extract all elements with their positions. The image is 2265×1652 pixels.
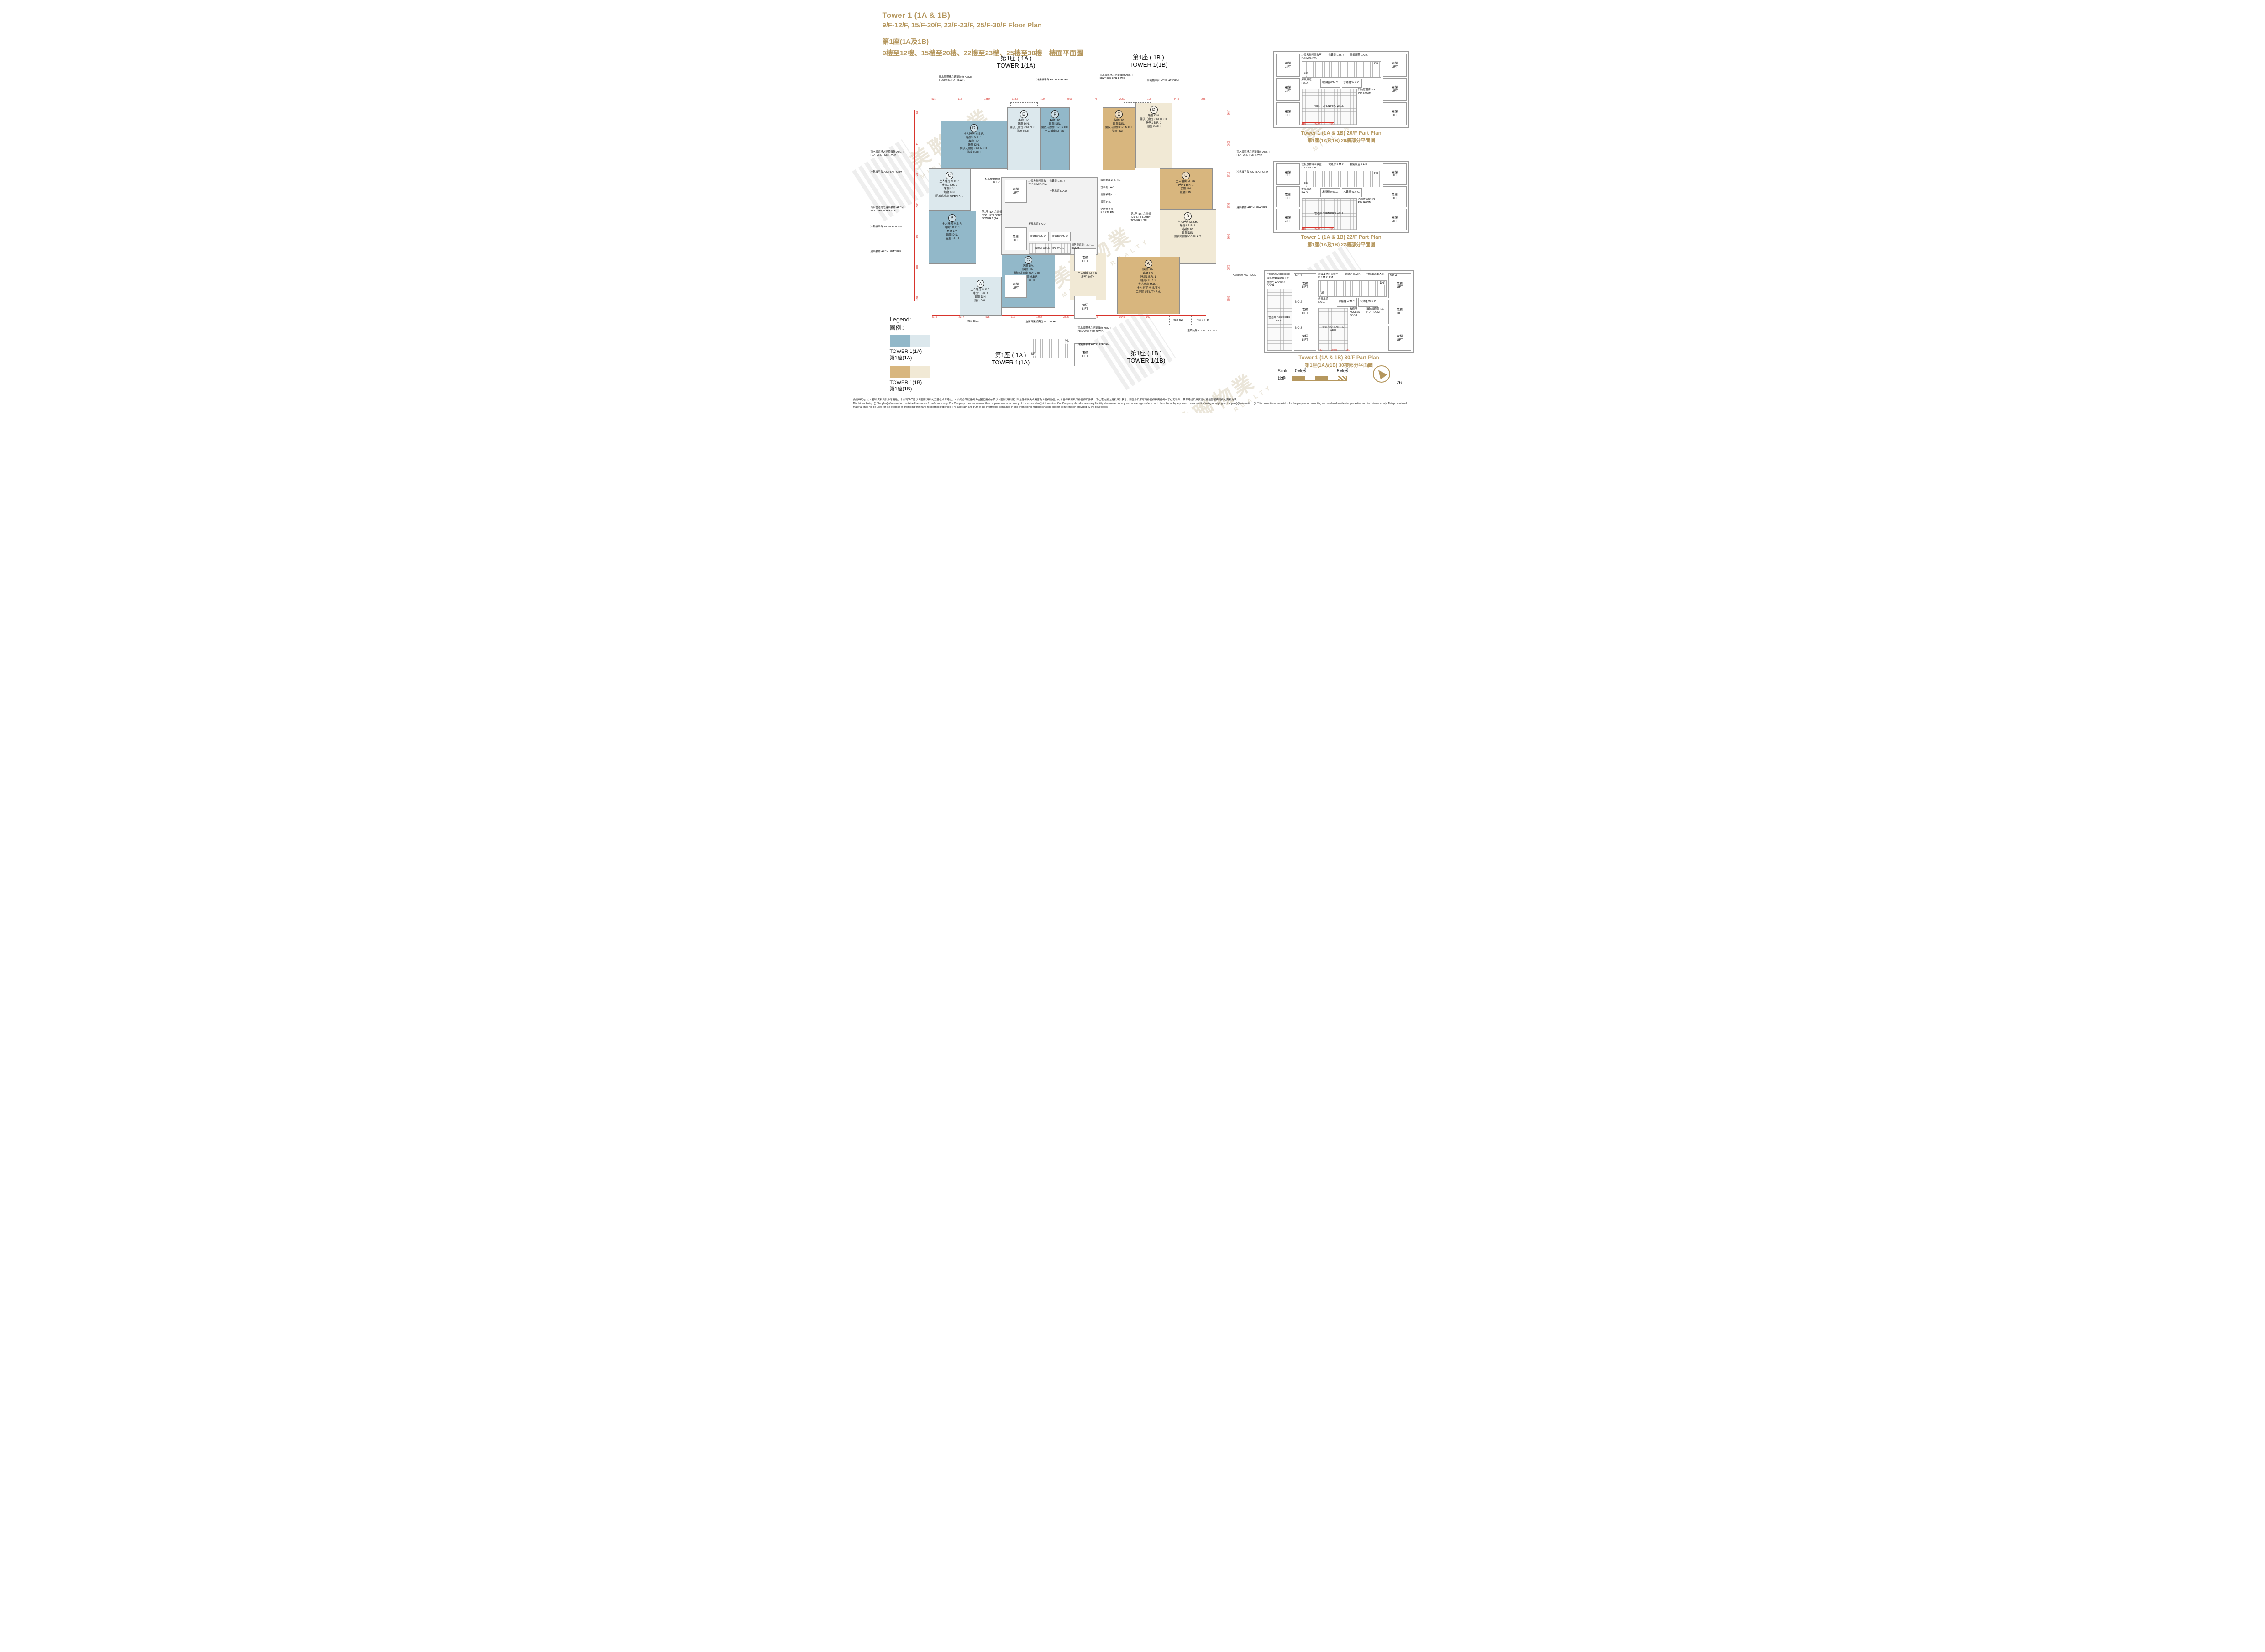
open-pipe-well: 管道井 OPEN PIPE WELL [1318,308,1348,351]
unit-rooms: 主人睡房 M.B.R.睡房1 B.R. 1客廳 LIV.飯廳 DIN. [1160,180,1212,195]
arch-feature-rwp-callout: 雨水管道槽之建築裝飾 ARCH. FEATURE FOR R.W.P. [1237,151,1277,157]
lift-shaft: 電梯LIFT [1383,163,1407,185]
scale-bar-segments [1292,376,1347,381]
lift-shaft: 電梯LIFT [1005,275,1027,298]
unit-letter: B [1184,212,1192,220]
dimension-strip-top: 5351151850123.550026007520501004445295 [932,97,1206,100]
part-plan-20f-title: Tower 1 (1A & 1B) 20/F Part Plan 第1座(1A及… [1273,131,1409,144]
lift-shaft: 電梯LIFT [1074,343,1096,366]
exhaust-duct-label: 排氣風道 E.A.D. [1350,163,1370,170]
balcony-box: 露台 BAL. [1169,316,1189,325]
lift-shaft: NO.1電梯LIFT [1294,273,1316,298]
ac-platform-callout: 冷氣機平台 A/C PLATFORM [871,226,911,229]
ac-platform-callout: 冷氣機平台 A/C PLATFORM [871,171,911,174]
fire-services-pipe-duct-room-label: 消防管道房 F.S. P.D. ROOM [1358,198,1381,230]
unit-1a-c: C 主人睡房 M.B.R.睡房1 B.R. 1客廳 LIV.飯廳 DIN.開放式… [929,168,971,211]
scale-label-en: Scale : [1278,368,1291,374]
lift-shaft: 電梯LIFT [1383,102,1407,125]
staircase: DN UP [1302,61,1381,78]
tower-1b-label-top: 第1座 ( 1B )TOWER 1(1B) [1117,54,1181,69]
temporary-refuge-space-label: 臨時庇護處 T.R.S. [1101,179,1122,182]
lift-shaft: 電梯LIFT [1074,296,1096,319]
arch-feature-rwp-callout: 雨水管道槽之建築裝飾 ARCH. FEATURE FOR R.W.P. [939,76,981,82]
unit-rooms: 客廳 LIV.飯廳 DIN.開放式廚房 OPEN KIT.主人睡房 M.B.R. [1041,119,1069,133]
part-plan-22f: 電梯LIFT 電梯LIFT 電梯LIFT 垃圾及物料回收室 R.S.M.R. R… [1273,161,1409,233]
meter-room-label: 電錶房 E.M.R. [1329,163,1349,170]
unit-1a-b: B 主人睡房 M.B.R.睡房1 B.R. 1客廳 LIV.飯廳 DIN.浴室 … [929,211,976,264]
dimension-strip: 4402400250 [1302,122,1334,126]
scale-bar: Scale : 0M/米 5M/米 比例 [1278,367,1369,381]
ac-platform-callout: 冷氣機平台 A/C PLATFORM [1078,343,1120,347]
pipe-duct-label: 管道 P.D. [1101,201,1122,204]
legend-title-en: Legend: [890,316,945,323]
water-meter-cabinet: 水錶櫃 W.M.C. [1342,79,1362,88]
unit-letter: F [1051,110,1059,118]
compass-icon [1373,365,1390,383]
unit-rooms: 客廳 LIV.飯廳 DIN.開放式廚房 OPEN KIT.浴室 BATH [1103,119,1135,133]
lift-shaft: 電梯LIFT [1383,78,1407,101]
fresh-air-duct-label: 鮮風風道 F.A.D. [1302,79,1319,88]
staircase: DN UP [1318,280,1387,297]
arch-feature-callout: 建築裝飾 ARCH. FEATURE [871,250,911,253]
legend-title-zh: 圖例： [890,323,945,331]
unit-letter: G [1025,256,1032,264]
lift-shaft: 電梯LIFT [1276,102,1300,125]
sheet-header: Tower 1 (1A & 1B) 9/F-12/F, 15/F-20/F, 2… [883,11,1138,58]
dimension-strip-right: 1495508027253025249522402815 [1226,110,1230,301]
part-plan-20f: 電梯LIFT 電梯LIFT 電梯LIFT 垃圾及物料回收室 R.S.M.R. R… [1273,51,1409,128]
access-door-label: 檢修門 ACCESS DOOR [1350,308,1365,351]
scale-zero: 0M/米 [1295,368,1306,374]
water-meter-cabinet: 水錶櫃 W.M.C. [1320,79,1340,88]
lift-lobby-1a-label: 第1座 (1A) 之電梯大堂 LIFT LOBBY TOWER 1 (1A) [982,211,1002,221]
exhaust-duct-label: 排氣風道 E.A.D. [1350,54,1370,60]
arch-feature-callout: 建築裝飾 ARCH. FEATURE [1188,330,1230,333]
arch-feature-callout: 建築裝飾 ARCH. FEATURE [1237,206,1277,210]
balcony-box: 露台 BAL. [964,317,983,326]
unit-1a-f: F 客廳 LIV.飯廳 DIN.開放式廚房 OPEN KIT.主人睡房 M.B.… [1041,107,1070,170]
staircase: DN UP [1302,171,1381,187]
unit-1a-e: E 客廳 LIV.飯廳 DIN.開放式廚房 OPEN KIT.浴室 BATH [1007,107,1041,170]
lift-shaft: 電梯LIFT [1005,180,1027,203]
lift-shaft: NO.3電梯LIFT [1294,326,1316,351]
part-plan-30f-title: Tower 1 (1A & 1B) 30/F Part Plan 第1座(1A及… [1264,355,1414,368]
lift-shaft: 電梯LIFT [1005,227,1027,250]
page-number: 26 [1397,380,1402,385]
open-pipe-well: 管道井 OPEN PIPE WELL [1029,243,1071,254]
legend-label-1b-en: TOWER 1(1B) [890,379,945,386]
title-english-line1: Tower 1 (1A & 1B) [883,11,1138,20]
arch-feature-rwp-callout: 雨水管道槽之建築裝飾 ARCH. FEATURE FOR R.W.P. [871,206,911,213]
part-plan-22f-title: Tower 1 (1A & 1B) 22/F Part Plan 第1座(1A及… [1273,235,1409,248]
meter-room-label: 電錶房 E.M.R. [1050,180,1072,183]
lift-shaft: NO.4電梯LIFT [1388,273,1411,298]
unit-1a-d: D 主人睡房 M.B.R.睡房1 B.R. 1客廳 LIV.飯廳 DIN.開放式… [941,121,1007,169]
open-pipe-well: 管道井 OPEN PIPE WELL [1267,289,1292,351]
dimension-strip: 4402400250 [1318,348,1350,352]
ac-platform-callout: 冷氣機平台 A/C PLATFORM [1147,79,1189,83]
unit-1b-b: B 主人睡房 M.B.R.睡房1 B.R. 1客廳 LIV.飯廳 DIN.開放式… [1160,209,1216,264]
metal-louvre-callout: 金屬百葉於高位 M.L. AT H/L. [1026,321,1070,324]
legend-label-1a-en: TOWER 1(1A) [890,348,945,355]
lift-shaft: 電梯LIFT [1276,78,1300,101]
scale-label-zh: 比例 [1278,375,1287,381]
legend-label-1a-zh: 第1座(1A) [890,355,945,361]
scale-five: 5M/米 [1337,368,1348,374]
disclaimer-chinese: 免責聲明:(i)以上圖則/資料只供參考用途，本公司不保證以上圖則/資料的完整性或… [853,398,1412,402]
unit-letter: C [1182,172,1190,179]
unit-letter: D [970,124,978,132]
refuse-room-label: 垃圾及物料回收室 R.S.M.R. RM. [1302,163,1327,170]
lift-lobby-1b-label: 第1座 (1B) 之電梯大堂 LIFT LOBBY TOWER 1 (1B) [1131,213,1153,222]
arch-feature-rwp-callout: 雨水管道槽之建築裝飾 ARCH. FEATURE FOR R.W.P. [871,151,911,157]
fire-services-pipe-duct-room-label: 消防管道房 F.S. P.D. ROOM [1072,244,1097,250]
fresh-air-duct-label: 鮮風風道 F.A.D. [1302,188,1319,197]
elv-room-label: 特低壓電線房 E.L.V. [1267,277,1292,280]
title-english-line2: 9/F-12/F, 15/F-20/F, 22/F-23/F, 25/F-30/… [883,21,1138,29]
floor-plan-sheet: 美聯物業MIDLAND REALTY 美聯物業MIDLAND REALTY 美聯… [850,0,1416,413]
lift-shaft: 電梯LIFT [1383,209,1407,230]
fire-services-pipe-duct-room-label: 消防管道房 F.S. P.D. ROOM [1358,89,1381,125]
legend: Legend: 圖例： TOWER 1(1A) 第1座(1A) TOWER 1(… [890,316,945,392]
lift-shaft: 電梯LIFT [1276,186,1300,208]
elv-room-label: 特低壓電線房 E.L.V. [980,178,1000,184]
unit-rooms: 客廳 LIV.飯廳 DIN.開放式廚房 OPEN KIT.浴室 BATH [1008,119,1040,133]
water-meter-cabinet: 水錶櫃 W.M.C. [1320,188,1340,197]
access-door-label: 檢修門 ACCESS DOOR [1267,281,1292,288]
unit-letter: E [1020,110,1028,118]
hose-reel-label: 消防喉轆 H.R. [1101,194,1122,197]
refuse-room-label: 垃圾及物料回收室 R.S.M.R. RM. [1029,180,1048,186]
meter-room-label: 電錶房 E.M.R. [1329,54,1349,60]
disclaimer: 免責聲明:(i)以上圖則/資料只供參考用途，本公司不保證以上圖則/資料的完整性或… [853,398,1412,409]
open-pipe-well: 管道井 OPEN PIPE WELL [1302,89,1357,125]
water-meter-cabinet: 水錶櫃 W.M.C. [1358,298,1378,307]
north-label: N [1367,363,1371,368]
arch-feature-rwp-callout: 雨水管道槽之建築裝飾 ARCH. FEATURE FOR R.W.P. [1078,327,1120,333]
water-meter-cabinet: 水錶櫃 W.M.C. [1337,298,1357,307]
meter-room-label: 電錶房 E.M.R. [1345,273,1365,279]
legend-swatch-1a [890,335,945,347]
ac-hood-label: 空調遮簷 A/C HOOD [1267,273,1292,276]
refuse-room-label: 垃圾及物料回收室 R.S.M.R. RM. [1302,54,1327,60]
utility-platform-box: 工作平台 U.P. [1191,316,1212,325]
unit-rooms: 主人睡房 M.B.R.睡房1 B.R. 1客廳 LIV.飯廳 DIN.開放式廚房… [941,132,1007,155]
unit-1a-a: A 主人睡房 M.B.R.睡房1 B.R. 1飯廳 DIN.露台 BAL. [960,277,1002,316]
exhaust-duct-label: 排氣風道 E.A.D. [1366,273,1387,279]
lift-shaft: 電梯LIFT [1388,300,1411,325]
unit-letter: B [948,214,956,222]
tower-1b-label-bottom: 第1座 ( 1B )TOWER 1(1B) [1114,350,1178,365]
lift-shaft: 電梯LIFT [1276,163,1300,185]
unit-letter: A [1145,260,1152,268]
lift-shaft: NO.2電梯LIFT [1294,300,1316,325]
unit-1b-d: D 飯廳 DIN.開放式廚房 OPEN KIT.睡房1 B.R. 1浴室 BAT… [1135,103,1172,168]
fire-services-pipe-duct-room-label: 消防管道房 F.S. P.D. ROOM [1366,308,1387,351]
lift-shaft: 電梯LIFT [1388,326,1411,351]
unit-rooms: 主人睡房 M.B.R.睡房1 B.R. 1客廳 LIV.飯廳 DIN.浴室 BA… [929,222,976,241]
water-meter-cabinet: 水錶櫃 W.M.C. [1342,188,1362,197]
unit-rooms: 飯廳 DIN.開放式廚房 OPEN KIT.睡房1 B.R. 1浴室 BATH [1136,114,1172,129]
part-plan-30f: 空調遮簷 A/C HOOD 特低壓電線房 E.L.V. 檢修門 ACCESS D… [1264,270,1414,353]
lift-shaft: 電梯LIFT [1074,248,1096,271]
dimension-strip: 4402400250 [1302,227,1334,231]
unit-letter: D [1150,106,1158,114]
tower-1a-label-top: 第1座 ( 1A )TOWER 1(1A) [987,55,1046,70]
fresh-air-duct-label: 鮮風風道 F.A.D. [1318,298,1335,307]
unit-1b-e: E 客廳 LIV.飯廳 DIN.開放式廚房 OPEN KIT.浴室 BATH [1103,107,1135,170]
unit-letter: C [946,172,953,179]
dimension-strip-left: 1495394530252050360018051660 [914,110,918,301]
lift-shaft: 電梯LIFT [1276,54,1300,77]
lavatory-label: 洗手間 LAV. [1101,186,1122,189]
lift-shaft: 電梯LIFT [1383,186,1407,208]
water-meter-cabinet: 水錶櫃 W.M.C. [1029,232,1049,241]
exhaust-duct-label: 排氣風道 E.A.D. [1050,190,1072,193]
arch-feature-rwp-callout: 雨水管道槽之建築裝飾 ARCH. FEATURE FOR R.W.P. [1100,74,1142,80]
unit-rooms: 主人睡房 M.B.R.睡房1 B.R. 1客廳 LIV.飯廳 DIN.開放式廚房… [1160,221,1216,239]
unit-1b-c: C 主人睡房 M.B.R.睡房1 B.R. 1客廳 LIV.飯廳 DIN. [1160,168,1213,209]
unit-rooms: 主人睡房 M.B.R.睡房1 B.R. 1飯廳 DIN.露台 BAL. [960,288,1001,303]
open-pipe-well: 管道井 OPEN PIPE WELL [1302,198,1357,230]
water-meter-cabinet: 水錶櫃 W.M.C. [1051,232,1071,241]
unit-rooms: 主人睡房 M.B.R.睡房1 B.R. 1客廳 LIV.飯廳 DIN.開放式廚房… [929,180,970,198]
legend-label-1b-zh: 第1座(1B) [890,386,945,392]
fspd-rm-label: 消防管道房 F.S.P.D. RM. [1101,208,1122,215]
lift-shaft: 電梯LIFT [1276,209,1300,230]
midland-logo-watermark [1094,308,1176,390]
title-chinese-line1: 第1座(1A及1B) [883,37,1138,46]
unit-letter: E [1115,110,1123,118]
lift-shaft: 電梯LIFT [1383,54,1407,77]
central-core: 電梯LIFT 電梯LIFT 電梯LIFT 電梯LIFT 電梯LIFT 電梯LIF… [1001,177,1098,255]
ac-platform-callout: 冷氣機平台 A/C PLATFORM [1037,79,1079,82]
staircase: DN UP [1029,339,1072,358]
legend-swatch-1b [890,366,945,378]
unit-letter: A [977,280,984,288]
refuse-room-label: 垃圾及物料回收室 R.S.M.R. RM. [1318,273,1344,279]
unit-1b-a: A 飯廳 DIN.客廳 LIV.睡房1 B.R. 1睡房2 B.R. 2主人睡房… [1117,257,1180,314]
fresh-air-duct-label: 鮮風風道 F.A.D. [1029,223,1047,226]
unit-rooms: 飯廳 DIN.客廳 LIV.睡房1 B.R. 1睡房2 B.R. 2主人睡房 M… [1118,268,1179,294]
ac-platform-callout: 冷氣機平台 A/C PLATFORM [1237,171,1277,174]
disclaimer-english: Disclaimer Policy: (i) The plan(s)/infor… [853,402,1412,409]
